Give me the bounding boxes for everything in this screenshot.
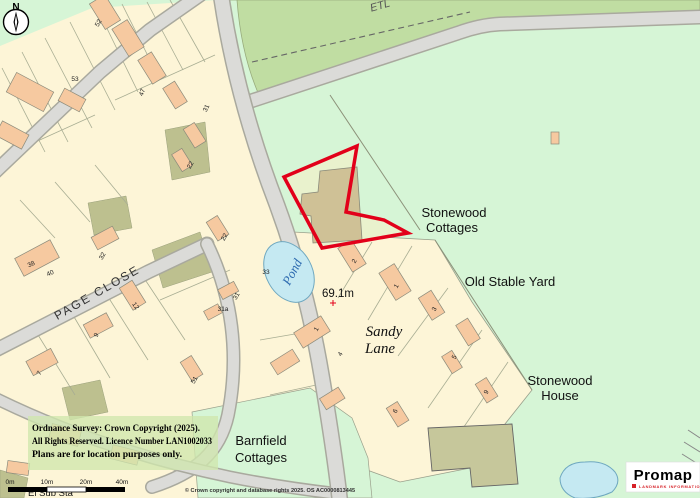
barnfield-cottages-label-line2: Cottages <box>235 450 288 465</box>
promap-tagline: LANDMARK INFORMATION <box>639 484 700 489</box>
os-copyright-line1: Ordnance Survey: Crown Copyright (2025). <box>32 423 200 433</box>
house-number-label: 31a <box>218 306 229 313</box>
old-stable-yard-label: Old Stable Yard <box>465 274 556 289</box>
landmark-square-icon <box>632 484 636 488</box>
os-copyright-line2: All Rights Reserved. Licence Number LAN1… <box>32 436 212 446</box>
pond-small-southeast <box>560 462 618 498</box>
spot-height-label: 69.1m <box>322 288 354 300</box>
map-viewport[interactable]: ETL Stonewood Cottages Old Stable Yard S… <box>0 0 700 498</box>
promap-logo: Promap LANDMARK INFORMATION <box>626 462 700 492</box>
map-canvas[interactable]: ETL Stonewood Cottages Old Stable Yard S… <box>0 0 700 498</box>
sandy-lane-label-line1: Sandy <box>366 324 403 340</box>
house-number-label: 33 <box>262 269 270 276</box>
os-copyright-line3: Plans are for location purposes only. <box>32 449 182 459</box>
stonewood-cottages-label-line2: Cottages <box>426 220 479 235</box>
stonewood-cottages-label-line1: Stonewood <box>421 205 486 220</box>
scale-label-0: 0m <box>5 479 14 486</box>
barnfield-cottages-label-line1: Barnfield <box>235 433 286 448</box>
house-number-label: 53 <box>71 76 79 83</box>
sandy-lane-label-line2: Lane <box>364 341 395 357</box>
scale-label-3: 40m <box>116 479 129 486</box>
stonewood-house-label-line2: House <box>541 388 579 403</box>
promap-wordmark: Promap <box>634 467 693 484</box>
north-label: N <box>12 2 19 13</box>
stonewood-house-label-line1: Stonewood <box>527 373 592 388</box>
scale-label-1: 10m <box>41 479 54 486</box>
scale-label-2: 20m <box>80 479 93 486</box>
crown-credit-text: © Crown copyright and database rights 20… <box>185 487 355 494</box>
os-copyright-box: Ordnance Survey: Crown Copyright (2025).… <box>28 416 218 470</box>
